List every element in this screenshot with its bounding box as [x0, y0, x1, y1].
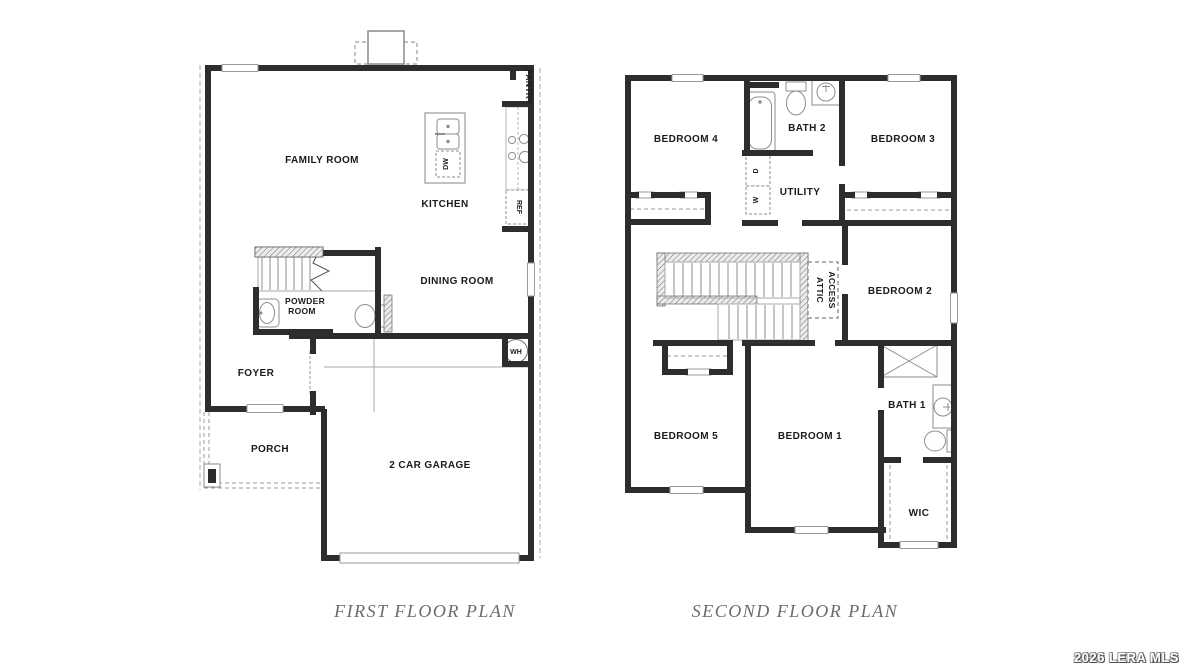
mls-watermark: 2026 LERA MLS: [1074, 650, 1179, 665]
porch-label: PORCH: [251, 444, 289, 455]
bedroom2-window: [951, 293, 958, 323]
front-door: [247, 405, 283, 413]
washer-label: W: [753, 196, 760, 203]
wic-window: [900, 542, 938, 549]
garage-door: [340, 553, 519, 563]
family-room-label: FAMILY ROOM: [285, 155, 359, 166]
bedroom4-label: BEDROOM 4: [654, 134, 718, 145]
floor-plan-drawing: FAMILY ROOM KITCHEN PANTRY DW REF DINING…: [0, 0, 1182, 665]
attic-access-label-line1: ATTIC: [815, 277, 825, 303]
floor-plan-sheet: FAMILY ROOM KITCHEN PANTRY DW REF DINING…: [0, 0, 1182, 665]
washer-dryer-boxes: [746, 155, 770, 214]
bedroom5-label: BEDROOM 5: [654, 431, 718, 442]
second-floor-walls: [628, 78, 954, 545]
bedroom1-label: BEDROOM 1: [778, 431, 842, 442]
staircase-second-floor: [657, 253, 808, 343]
stair-break-line: [311, 253, 329, 291]
second-floor-caption: SECOND FLOOR PLAN: [692, 601, 899, 622]
garage-label: 2 CAR GARAGE: [389, 460, 470, 471]
kitchen-label: KITCHEN: [421, 199, 468, 210]
utility-label: UTILITY: [780, 187, 821, 198]
refrigerator-label: REF: [515, 200, 522, 215]
bath1-toilet-icon: [925, 430, 956, 452]
bedroom3-label: BEDROOM 3: [871, 134, 935, 145]
porch-column: [204, 464, 220, 487]
stair-hatched-wall: [255, 247, 323, 257]
dishwasher-label: DW: [443, 158, 450, 170]
attic-access-label-line2: ACCESS: [827, 271, 837, 308]
bath1-sink-icon: [933, 385, 954, 428]
powder-door-jamb: [384, 295, 392, 332]
bath2-label: BATH 2: [788, 123, 826, 134]
bath2-toilet-icon: [786, 82, 806, 115]
dining-window: [528, 263, 535, 296]
bath1-shower-icon: [881, 345, 937, 377]
bath1-label: BATH 1: [888, 400, 926, 411]
foyer-label: FOYER: [238, 368, 275, 379]
double-sink-icon: [435, 119, 459, 149]
chimney: [355, 31, 417, 64]
first-floor-plan: FAMILY ROOM KITCHEN PANTRY DW REF DINING…: [200, 31, 540, 563]
pantry-label: PANTRY: [524, 69, 534, 105]
powder-room-label-line2: ROOM: [288, 306, 316, 316]
bedroom2-label: BEDROOM 2: [868, 286, 932, 297]
family-room-window: [222, 65, 258, 72]
water-heater-label: WH: [510, 349, 522, 356]
kitchen-island: [425, 113, 465, 183]
wic-label: WIC: [909, 508, 930, 519]
first-floor-caption: FIRST FLOOR PLAN: [334, 601, 516, 622]
bedroom1-window: [795, 527, 828, 534]
powder-room-sink-icon: [257, 299, 279, 327]
second-floor-plan: BEDROOM 4 BATH 2 BEDROOM 3 UTILITY D W A…: [628, 75, 958, 549]
dining-room-label: DINING ROOM: [420, 276, 493, 287]
bath2-sink-icon: [812, 80, 840, 105]
bedroom5-window: [670, 487, 703, 494]
bedroom4-window: [672, 75, 703, 82]
bedroom3-window: [888, 75, 920, 82]
dryer-label: D: [753, 168, 760, 173]
powder-room-label-line1: POWDER: [285, 296, 325, 306]
kitchen-counter: [506, 107, 531, 190]
